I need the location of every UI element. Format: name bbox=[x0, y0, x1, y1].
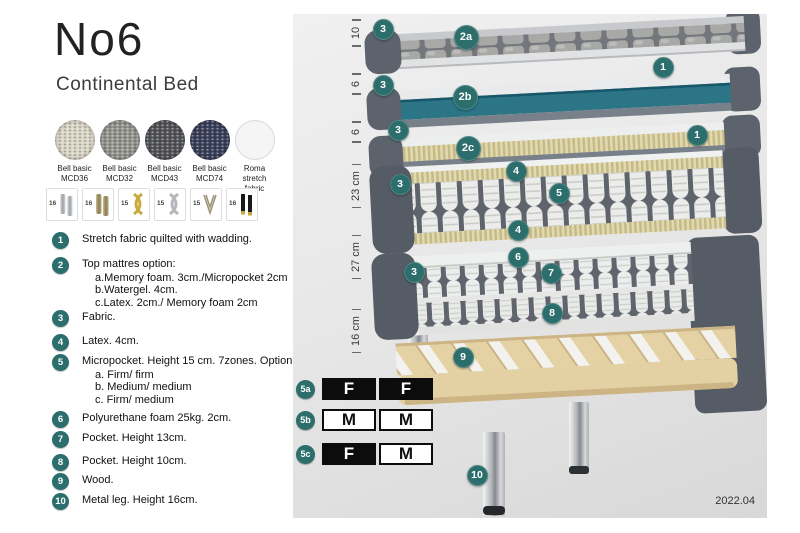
measurement-tick bbox=[352, 278, 361, 280]
diagram-callout-badge: 8 bbox=[542, 303, 563, 324]
measurement-tick bbox=[352, 309, 361, 311]
legend-text: Metal leg. Height 16cm. bbox=[82, 493, 198, 508]
firmness-row: 5a F F bbox=[296, 378, 433, 400]
layer-watergel bbox=[366, 66, 762, 131]
diagram-callout-badge: 3 bbox=[373, 19, 394, 40]
legend-subline: b.Watergel. 4cm. bbox=[95, 284, 288, 296]
firmness-id-badge: 5a bbox=[296, 380, 315, 399]
measurement-tick bbox=[352, 235, 361, 237]
layer-top-mattress bbox=[364, 14, 762, 75]
legend-text: Fabric. bbox=[82, 310, 116, 325]
legend-item: 8 Pocket. Height 10cm. bbox=[52, 454, 187, 471]
measurement-tick bbox=[352, 164, 361, 166]
legend-item: 6 Polyurethane foam 25kg. 2cm. bbox=[52, 411, 231, 428]
legend-number-badge: 4 bbox=[52, 334, 69, 351]
legend-subline: c.Latex. 2cm./ Memory foam 2cm bbox=[95, 297, 288, 309]
firmness-row: 5c F M bbox=[296, 443, 433, 465]
measurement-label: 16 cm bbox=[350, 316, 362, 346]
legend-item: 4 Latex. 4cm. bbox=[52, 334, 139, 351]
legend-text: Polyurethane foam 25kg. 2cm. bbox=[82, 411, 231, 426]
legend-number-badge: 5 bbox=[52, 354, 69, 371]
legend-subline: c. Firm/ medium bbox=[95, 394, 295, 406]
legend-sublist: a.Memory foam. 3cm./Micropocket 2cmb.Wat… bbox=[82, 272, 288, 309]
legend-item: 9 Wood. bbox=[52, 473, 114, 490]
legend-text: Wood. bbox=[82, 473, 114, 488]
diagram-callout-badge: 3 bbox=[404, 262, 425, 283]
legend-number-badge: 2 bbox=[52, 257, 69, 274]
legend-number-badge: 3 bbox=[52, 310, 69, 327]
diagram-callout-badge: 4 bbox=[508, 220, 529, 241]
diagram-panel: 10 6 6 23 cm 27 cm 16 cm 32a132b32c13454… bbox=[293, 14, 767, 518]
diagram-callout-badge: 1 bbox=[653, 57, 674, 78]
firmness-id-badge: 5c bbox=[296, 445, 315, 464]
diagram-callout-badge: 10 bbox=[467, 465, 488, 486]
diagram-callout-badge: 3 bbox=[388, 120, 409, 141]
legend-number-badge: 1 bbox=[52, 232, 69, 249]
measurement-tick bbox=[352, 73, 361, 75]
firmness-id-badge: 5b bbox=[296, 411, 315, 430]
legend-item: 3 Fabric. bbox=[52, 310, 116, 327]
firmness-cell: M bbox=[379, 443, 433, 465]
legend-subline: a.Memory foam. 3cm./Micropocket 2cm bbox=[95, 272, 288, 284]
firmness-cell: M bbox=[322, 409, 376, 431]
legend-item: 1 Stretch fabric quilted with wadding. bbox=[52, 232, 252, 249]
measurement-tick bbox=[352, 19, 361, 21]
diagram-callout-badge: 6 bbox=[508, 247, 529, 268]
diagram-callout-badge: 3 bbox=[373, 75, 394, 96]
legend-text: Latex. 4cm. bbox=[82, 334, 139, 349]
legend-text: Pocket. Height 10cm. bbox=[82, 454, 187, 469]
legend-number-badge: 8 bbox=[52, 454, 69, 471]
measurement-label: 27 cm bbox=[350, 242, 362, 272]
firmness-row: 5b M M bbox=[296, 409, 433, 431]
legend-number-badge: 6 bbox=[52, 411, 69, 428]
diagram-callout-badge: 2b bbox=[453, 85, 478, 110]
legend-item: 5 Micropocket. Height 15 cm. 7zones. Opt… bbox=[52, 354, 295, 406]
measurement-tick bbox=[352, 352, 361, 354]
legend-text: Micropocket. Height 15 cm. 7zones. Optio… bbox=[82, 354, 295, 369]
legend-number-badge: 7 bbox=[52, 431, 69, 448]
legend-text: Top mattres option: bbox=[82, 257, 288, 272]
diagram-callout-badge: 9 bbox=[453, 347, 474, 368]
legend-item: 2 Top mattres option: a.Memory foam. 3cm… bbox=[52, 257, 288, 309]
firmness-cell: F bbox=[379, 378, 433, 400]
diagram-callout-badge: 5 bbox=[549, 183, 570, 204]
diagram-callout-badge: 4 bbox=[506, 161, 527, 182]
legend-text: Pocket. Height 13cm. bbox=[82, 431, 187, 446]
legend-number-badge: 9 bbox=[52, 473, 69, 490]
measurement-label: 6 bbox=[350, 129, 362, 135]
diagram-callout-badge: 2a bbox=[454, 25, 479, 50]
legend-sublist: a. Firm/ firmb. Medium/ mediumc. Firm/ m… bbox=[82, 369, 295, 406]
diagram-callout-badge: 2c bbox=[456, 136, 481, 161]
legend-number-badge: 10 bbox=[52, 493, 69, 510]
page: No6 Continental Bed Bell basic MCD36 Bel… bbox=[0, 0, 800, 533]
firmness-cell: F bbox=[322, 378, 376, 400]
layer-wood-base bbox=[395, 326, 738, 406]
legend-list: 1 Stretch fabric quilted with wadding. 2… bbox=[0, 0, 293, 533]
diagram-callout-badge: 7 bbox=[541, 263, 562, 284]
firmness-cell: F bbox=[322, 443, 376, 465]
diagram-callout-badge: 3 bbox=[390, 174, 411, 195]
firmness-cell: M bbox=[379, 409, 433, 431]
legend-item: 7 Pocket. Height 13cm. bbox=[52, 431, 187, 448]
diagram-callout-badge: 1 bbox=[687, 125, 708, 146]
legend-subline: b. Medium/ medium bbox=[95, 381, 295, 393]
leg-mid bbox=[569, 402, 589, 474]
version-label: 2022.04 bbox=[715, 495, 755, 507]
measurement-label: 23 cm bbox=[350, 171, 362, 201]
legend-text: Stretch fabric quilted with wadding. bbox=[82, 232, 252, 247]
measurement-tick bbox=[352, 121, 361, 123]
measurement: 16 cm bbox=[348, 281, 364, 381]
legend-subline: a. Firm/ firm bbox=[95, 369, 295, 381]
legend-item: 10 Metal leg. Height 16cm. bbox=[52, 493, 198, 510]
